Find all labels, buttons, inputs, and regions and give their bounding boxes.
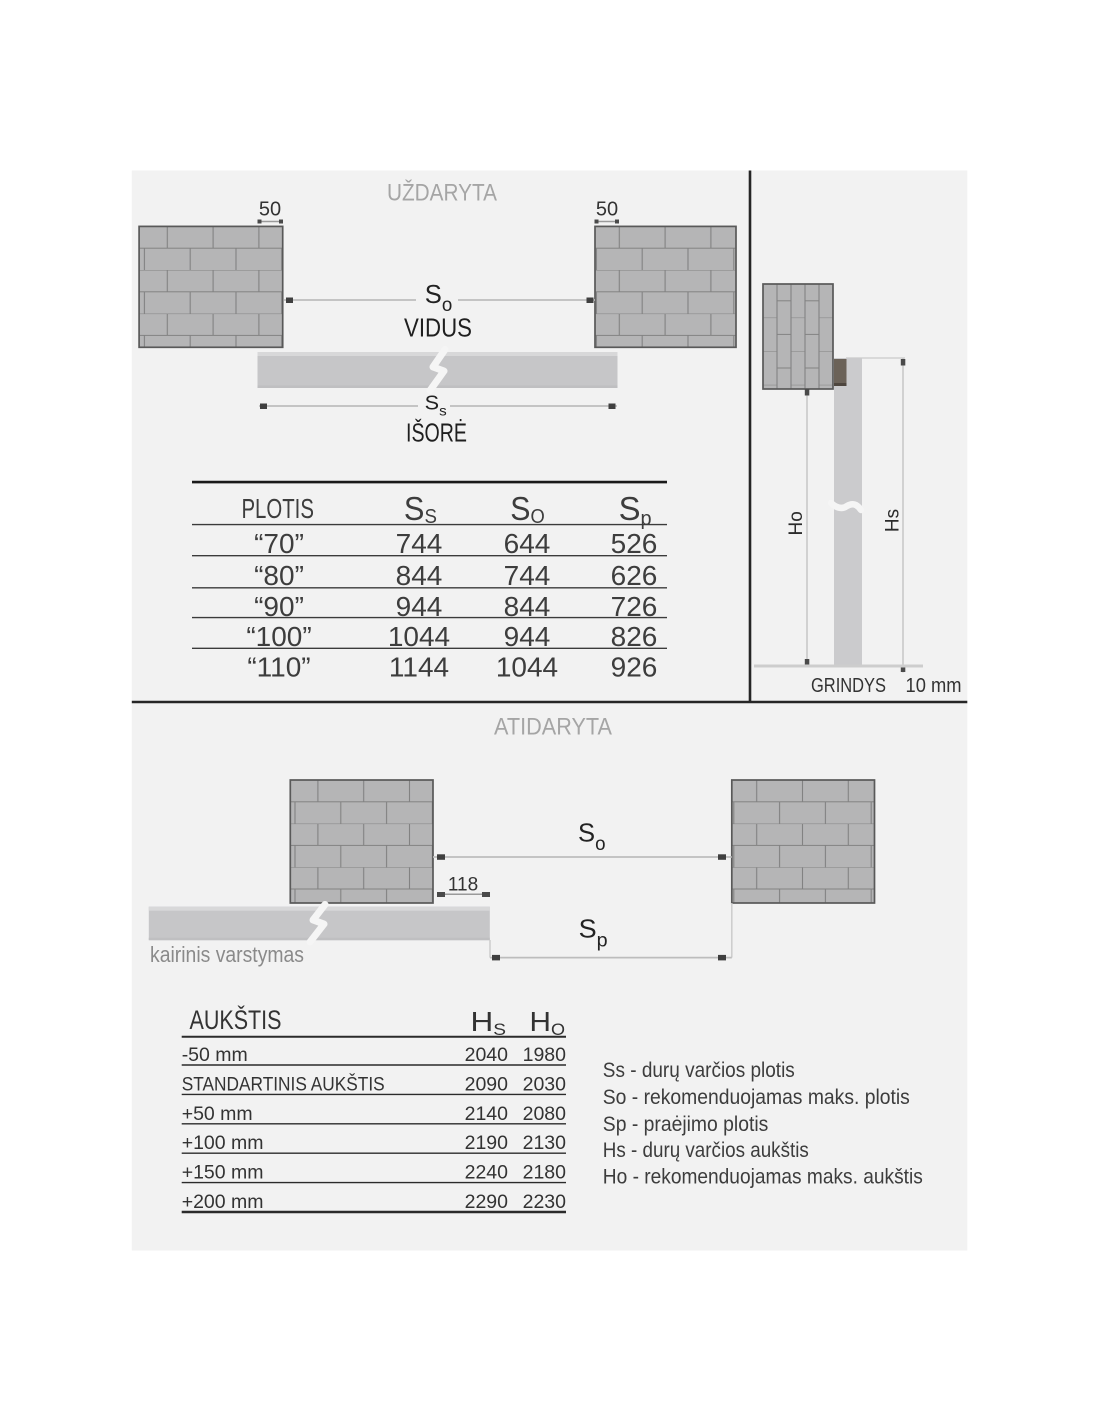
svg-text:2090: 2090 <box>465 1073 509 1095</box>
svg-text:UŽDARYTA: UŽDARYTA <box>387 180 497 207</box>
svg-text:GRINDYS: GRINDYS <box>811 675 886 697</box>
svg-text:“100”: “100” <box>246 621 311 652</box>
svg-text:744: 744 <box>396 528 443 559</box>
svg-text:Hs - durų varčios aukštis: Hs - durų varčios aukštis <box>603 1139 809 1162</box>
svg-text:944: 944 <box>504 621 551 652</box>
svg-text:2290: 2290 <box>465 1191 509 1213</box>
svg-text:ATIDARYTA: ATIDARYTA <box>494 713 612 740</box>
svg-text:“80”: “80” <box>254 560 304 591</box>
svg-text:526: 526 <box>611 528 658 559</box>
svg-text:2240: 2240 <box>465 1162 509 1184</box>
svg-text:2180: 2180 <box>523 1162 567 1184</box>
svg-text:844: 844 <box>396 560 443 591</box>
svg-text:Ss - durų varčios plotis: Ss - durų varčios plotis <box>603 1059 795 1082</box>
svg-text:2030: 2030 <box>523 1073 567 1095</box>
svg-text:644: 644 <box>504 528 551 559</box>
svg-text:“70”: “70” <box>254 528 304 559</box>
svg-text:Ho: Ho <box>786 511 807 535</box>
svg-text:Sp - praėjimo plotis: Sp - praėjimo plotis <box>603 1113 769 1136</box>
svg-text:626: 626 <box>611 560 658 591</box>
svg-text:+100 mm: +100 mm <box>182 1132 264 1154</box>
svg-text:2230: 2230 <box>523 1191 567 1213</box>
svg-text:STANDARTINIS AUKŠTIS: STANDARTINIS AUKŠTIS <box>182 1072 385 1095</box>
svg-text:IŠORĖ: IŠORĖ <box>406 417 467 447</box>
svg-text:1044: 1044 <box>388 621 450 652</box>
svg-text:+200 mm: +200 mm <box>182 1191 264 1213</box>
svg-text:Ho - rekomenduojamas maks. auk: Ho - rekomenduojamas maks. aukštis <box>603 1166 923 1189</box>
svg-text:744: 744 <box>504 560 551 591</box>
svg-text:PLOTIS: PLOTIS <box>241 493 314 524</box>
svg-text:10 mm: 10 mm <box>906 675 962 697</box>
svg-text:2080: 2080 <box>523 1103 567 1125</box>
svg-text:1144: 1144 <box>389 652 449 683</box>
svg-text:+50 mm: +50 mm <box>182 1103 253 1125</box>
svg-text:926: 926 <box>611 652 658 683</box>
svg-text:2140: 2140 <box>465 1103 509 1125</box>
svg-text:826: 826 <box>611 621 658 652</box>
svg-text:“110”: “110” <box>247 652 310 683</box>
svg-text:So - rekomenduojamas maks. pl: So - rekomenduojamas maks. plotis <box>603 1086 910 1109</box>
svg-text:AUKŠTIS: AUKŠTIS <box>190 1004 282 1035</box>
svg-text:1044: 1044 <box>496 652 558 683</box>
svg-text:+150 mm: +150 mm <box>182 1162 264 1184</box>
svg-text:2130: 2130 <box>523 1132 567 1154</box>
svg-text:-50 mm: -50 mm <box>182 1044 248 1066</box>
svg-text:kairinis varstymas: kairinis varstymas <box>150 942 304 967</box>
svg-text:118: 118 <box>448 875 478 896</box>
svg-text:2040: 2040 <box>465 1044 509 1066</box>
svg-text:2190: 2190 <box>465 1132 509 1154</box>
svg-text:Hs: Hs <box>883 509 904 532</box>
svg-text:50: 50 <box>596 199 618 221</box>
svg-text:VIDUS: VIDUS <box>404 313 472 343</box>
svg-text:50: 50 <box>259 199 281 221</box>
svg-text:1980: 1980 <box>523 1044 567 1066</box>
